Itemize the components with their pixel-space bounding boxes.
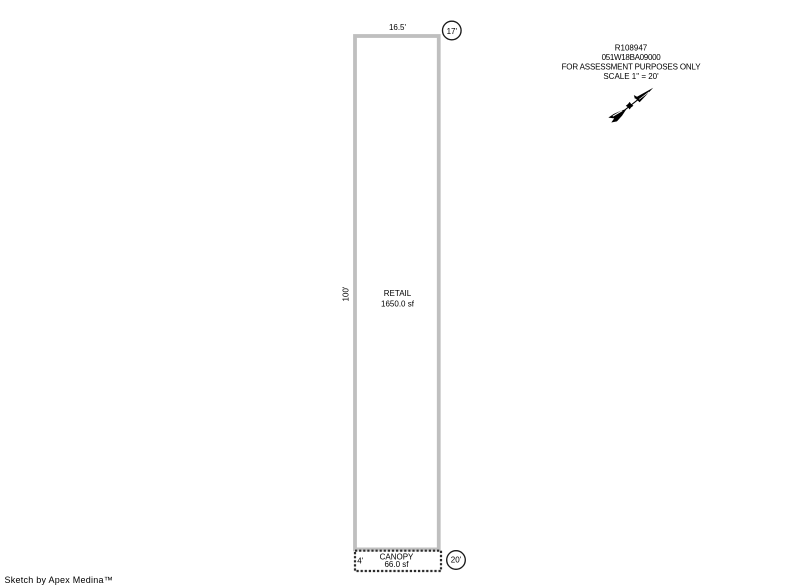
svg-text:1650.0 sf: 1650.0 sf [381,300,415,309]
svg-text:R108947: R108947 [615,44,648,53]
svg-text:66.0 sf: 66.0 sf [384,560,409,569]
svg-text:100': 100' [342,286,351,301]
svg-text:17': 17' [447,27,458,36]
svg-text:FOR ASSESSMENT PURPOSES ONLY: FOR ASSESSMENT PURPOSES ONLY [562,63,702,72]
svg-text:Sketch by Apex Medina™: Sketch by Apex Medina™ [5,575,114,585]
svg-text:20': 20' [451,556,462,565]
svg-text:4': 4' [357,556,363,565]
svg-text:SCALE 1" = 20': SCALE 1" = 20' [603,72,659,81]
svg-text:RETAIL: RETAIL [384,289,412,298]
svg-text:051W18BA09000: 051W18BA09000 [602,53,662,62]
svg-text:16.5': 16.5' [389,23,407,32]
